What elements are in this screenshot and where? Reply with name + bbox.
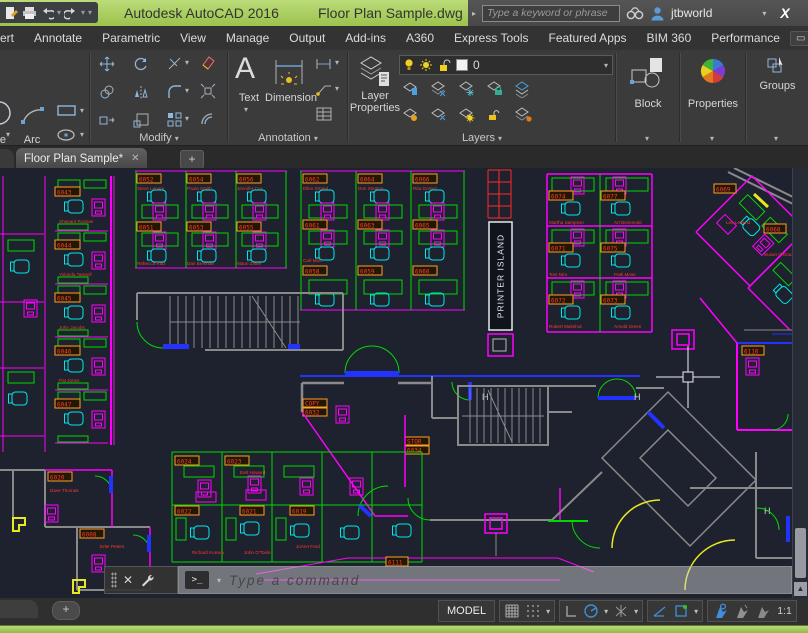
ribbon-tab-bar: Insert Annotate Parametric View Manage O… — [0, 26, 808, 50]
svg-text:Yolanda Tartanif: Yolanda Tartanif — [59, 272, 92, 277]
svg-text:6032: 6032 — [305, 410, 320, 417]
array-tool-icon[interactable] — [167, 112, 183, 128]
drag-grip-icon[interactable] — [111, 572, 117, 588]
document-title: Floor Plan Sample.dwg — [318, 5, 463, 21]
array-dropdown-icon[interactable]: ▾ — [185, 114, 189, 123]
annotation-autoscale-icon[interactable] — [733, 603, 749, 620]
app-title: Autodesk AutoCAD 2016 — [124, 5, 279, 21]
panel-block: Block ▾ — [617, 50, 679, 145]
svg-text:6063: 6063 — [360, 223, 375, 230]
search-input[interactable] — [482, 5, 620, 22]
exchange-apps-icon[interactable]: X — [780, 5, 789, 21]
crosshair-cursor — [656, 346, 720, 408]
svg-text:Pat Jones: Pat Jones — [59, 378, 80, 383]
file-tab-title: Floor Plan Sample* — [24, 153, 123, 165]
tab-add-ins[interactable]: Add-ins — [335, 26, 396, 50]
svg-text:6058: 6058 — [305, 269, 320, 276]
svg-text:6056: 6056 — [239, 177, 254, 184]
new-sheet-icon[interactable] — [4, 5, 19, 21]
tab-view[interactable]: View — [170, 26, 216, 50]
tab-performance[interactable]: Performance — [701, 26, 790, 50]
modify-panel-label[interactable]: Modify ▾ — [91, 132, 227, 144]
svg-text:6046: 6046 — [57, 349, 72, 356]
layer-properties-label-line2[interactable]: Properties — [349, 102, 401, 114]
fillet-tool-icon[interactable] — [167, 84, 183, 100]
annotation-panel-label[interactable]: Annotation ▾ — [229, 132, 347, 144]
user-icon[interactable] — [650, 6, 665, 21]
layers-panel-label[interactable]: Layers ▾ — [349, 132, 615, 144]
svg-text:6072: 6072 — [551, 298, 566, 305]
search-binoculars-icon[interactable] — [626, 6, 644, 20]
svg-text:Robert Malmhot: Robert Malmhot — [549, 324, 582, 329]
stretch-tool-icon[interactable] — [99, 112, 115, 128]
svg-text:Shepard Romias: Shepard Romias — [59, 219, 94, 224]
svg-text:H: H — [482, 392, 489, 402]
svg-text:Carl Mott: Carl Mott — [303, 258, 322, 263]
svg-text:John O'Toole: John O'Toole — [244, 550, 271, 555]
layer-properties-icon[interactable] — [357, 54, 391, 88]
layer-on-bulb-icon — [404, 58, 414, 72]
printer-island[interactable]: PRINTER ISLAND — [488, 170, 513, 356]
column-symbols[interactable] — [485, 330, 694, 556]
rectangle-dropdown-icon[interactable]: ▾ — [80, 106, 84, 115]
svg-text:6052: 6052 — [139, 177, 154, 184]
ribbon-minimize-icon[interactable]: ▭ ▾ — [790, 31, 808, 46]
dimension-tool-icon[interactable] — [271, 56, 307, 88]
fillet-dropdown-icon[interactable]: ▾ — [185, 86, 189, 95]
new-layout-button[interactable]: + — [52, 601, 80, 620]
qat-customize-icon[interactable]: ▾ — [88, 8, 92, 17]
isometric-drafting-icon[interactable] — [613, 603, 629, 619]
command-close-icon[interactable]: ✕ — [123, 573, 133, 587]
tab-bim-360[interactable]: BIM 360 — [637, 26, 702, 50]
user-dropdown-icon[interactable]: ▾ — [762, 9, 766, 18]
svg-text:Susan O'Grady: Susan O'Grady — [764, 252, 793, 257]
customize-wrench-icon[interactable] — [139, 572, 155, 588]
linear-dimension-dropdown-icon[interactable]: ▾ — [335, 58, 339, 67]
svg-text:Rebecca Ruiz: Rebecca Ruiz — [137, 261, 166, 266]
panel-properties: Properties ▾ — [681, 50, 745, 145]
circle-tool-icon[interactable] — [0, 98, 14, 128]
arc-tool-label[interactable]: Arc — [14, 134, 50, 145]
left-cubicle-strip[interactable]: 6043 Shepard Romias 6044 Yolanda Tartani… — [55, 176, 114, 445]
explode-tool-icon[interactable] — [199, 82, 217, 100]
tab-featured-apps[interactable]: Featured Apps — [538, 26, 636, 50]
layer-match-icon[interactable] — [513, 80, 535, 98]
svg-text:6024: 6024 — [177, 459, 192, 466]
new-drawing-tab-button[interactable]: + — [180, 150, 204, 169]
svg-text:Lee Ledend: Lee Ledend — [726, 220, 751, 225]
annotation-scale-value[interactable]: 1:1 — [775, 605, 792, 617]
object-snap-icon[interactable] — [673, 603, 689, 619]
svg-text:PRINTER ISLAND: PRINTER ISLAND — [496, 234, 506, 318]
copy-tool-icon[interactable] — [99, 84, 115, 100]
undo-dropdown-icon[interactable]: ▾ — [57, 8, 61, 17]
status-bar: + MODEL ▾ ▾ ▾ ▾ 1:1 — [0, 598, 808, 625]
svg-text:STOR: STOR — [407, 439, 422, 446]
layer-lock-icon[interactable] — [485, 80, 505, 98]
plot-icon[interactable] — [22, 5, 37, 20]
properties-label[interactable]: Properties — [681, 98, 745, 110]
tab-a360[interactable]: A360 — [396, 26, 444, 50]
snap-mode-icon[interactable] — [525, 603, 541, 619]
svg-text:6074: 6074 — [551, 194, 566, 201]
properties-color-wheel-icon[interactable] — [698, 56, 728, 86]
svg-text:Art Bezemold: Art Bezemold — [614, 220, 642, 225]
svg-text:6020: 6020 — [50, 475, 65, 482]
svg-text:6051: 6051 — [139, 225, 154, 232]
layer-off-icon[interactable] — [401, 106, 421, 124]
layer-unisolate-icon[interactable] — [429, 80, 449, 98]
svg-text:6062: 6062 — [305, 177, 320, 184]
layer-select-dropdown-icon[interactable]: ▾ — [604, 61, 608, 70]
svg-text:6045: 6045 — [57, 296, 72, 303]
floor-plan-drawing: 6043 Shepard Romias 6044 Yolanda Tartani… — [0, 168, 793, 598]
svg-text:6055: 6055 — [239, 225, 254, 232]
svg-text:6071: 6071 — [551, 246, 566, 253]
snap-dropdown-icon[interactable]: ▾ — [546, 607, 550, 616]
erase-tool-icon[interactable] — [199, 54, 217, 72]
svg-text:6021: 6021 — [242, 509, 257, 516]
command-input-area[interactable]: >_ ▾ Type a command — [178, 566, 792, 594]
svg-text:6066: 6066 — [415, 177, 430, 184]
isometric-dropdown-icon[interactable]: ▾ — [634, 607, 638, 616]
svg-text:6060: 6060 — [415, 269, 430, 276]
redo-dropdown-icon[interactable]: ▾ — [81, 8, 85, 17]
file-tab-bar: Floor Plan Sample* ✕ + — [0, 145, 808, 169]
svg-text:6023: 6023 — [227, 459, 242, 466]
svg-text:Dan Brennan: Dan Brennan — [187, 261, 215, 266]
undo-icon[interactable] — [40, 6, 54, 20]
layer-isolate-icon[interactable] — [401, 80, 421, 98]
room-6110[interactable]: 6110 — [737, 330, 793, 430]
svg-text:Richard Kumea: Richard Kumea — [192, 550, 224, 555]
command-line[interactable]: ✕ >_ ▾ Type a command — [104, 566, 792, 594]
ellipse-dropdown-icon[interactable]: ▾ — [80, 130, 84, 139]
text-tool-label[interactable]: Text — [231, 92, 267, 104]
infocenter-collapse-icon[interactable]: ▸ — [472, 9, 476, 18]
svg-text:6008: 6008 — [82, 532, 97, 539]
recent-commands-icon[interactable]: ▾ — [217, 576, 221, 585]
trim-dropdown-icon[interactable]: ▾ — [185, 58, 189, 67]
svg-text:6110: 6110 — [744, 349, 759, 356]
tab-annotate[interactable]: Annotate — [24, 26, 92, 50]
svg-text:6059: 6059 — [360, 269, 375, 276]
layer-color-swatch — [456, 59, 468, 71]
move-tool-icon[interactable] — [99, 56, 115, 72]
layer-walk-icon[interactable] — [513, 106, 535, 124]
layout-tab-stub[interactable] — [0, 600, 38, 618]
svg-text:Toni Niro: Toni Niro — [549, 272, 568, 277]
cubicle-cluster-c[interactable]: 6074 Martha Sampson 6077 Art Bezemold 60… — [547, 174, 652, 332]
svg-text:6047: 6047 — [57, 402, 72, 409]
svg-text:Arnold Green: Arnold Green — [614, 324, 642, 329]
model-space-button[interactable]: MODEL — [438, 600, 495, 622]
command-input-placeholder[interactable]: Type a command — [229, 573, 360, 588]
cubicle-cluster-a[interactable]: 6052 Steve Lenare 6054 Paula Smith 6056 … — [135, 171, 287, 268]
svg-text:6034: 6034 — [407, 448, 422, 455]
groups-icon[interactable] — [767, 56, 787, 76]
ortho-mode-icon[interactable] — [564, 604, 578, 618]
svg-text:6064: 6064 — [360, 177, 375, 184]
rotate-tool-icon[interactable] — [133, 56, 149, 72]
tab-express-tools[interactable]: Express Tools — [444, 26, 538, 50]
left-edge-cubicles[interactable] — [0, 176, 45, 452]
block-icon[interactable] — [630, 56, 666, 92]
layer-unlock-icon — [438, 59, 451, 72]
svg-text:6044: 6044 — [57, 243, 72, 250]
command-prompt-icon[interactable]: >_ — [185, 571, 209, 589]
offset-tool-icon[interactable] — [199, 110, 217, 128]
mirror-tool-icon[interactable] — [133, 84, 149, 100]
stairwell-top-left[interactable] — [137, 293, 343, 350]
vertical-scrollbar[interactable]: ▲ — [792, 168, 808, 598]
leader-dropdown-icon[interactable]: ▾ — [335, 84, 339, 93]
svg-text:6075: 6075 — [603, 246, 618, 253]
svg-text:Earl Howard: Earl Howard — [240, 470, 266, 475]
properties-panel-expander-icon[interactable]: ▾ — [710, 134, 714, 143]
layer-thaw-sun-icon — [419, 58, 433, 72]
tab-manage[interactable]: Manage — [216, 26, 279, 50]
svg-text:H: H — [634, 392, 641, 402]
svg-text:6054: 6054 — [189, 177, 204, 184]
svg-text:6065: 6065 — [415, 223, 430, 230]
object-snap-dropdown-icon[interactable]: ▾ — [694, 607, 698, 616]
panel-groups: Groups ▾ — [747, 50, 808, 145]
layer-on-all-icon[interactable] — [429, 106, 449, 124]
ribbon: Circle Arc ▾ ▾ ▾ ▾ ▾ ▾ ▾ ▾ Modify ▾ A Te… — [0, 50, 808, 145]
annotation-scale-icon[interactable] — [754, 603, 770, 620]
stairwell-central[interactable] — [432, 376, 664, 445]
polar-tracking-icon[interactable] — [583, 603, 599, 619]
tab-output[interactable]: Output — [279, 26, 335, 50]
layer-properties-label-line1[interactable]: Layer — [349, 90, 401, 102]
svg-text:6073: 6073 — [603, 298, 618, 305]
rotated-rooms-bottom-right[interactable]: H — [548, 392, 793, 590]
arc-tool-icon[interactable] — [20, 104, 46, 126]
svg-text:COPY: COPY — [305, 401, 320, 408]
scale-tool-icon[interactable] — [133, 112, 149, 128]
layer-thaw-all-icon[interactable] — [457, 106, 477, 124]
title-bar: ▾ ▾ ▾ Autodesk AutoCAD 2016 Floor Plan S… — [0, 0, 808, 26]
table-tool-icon[interactable] — [315, 106, 333, 122]
panel-layers: Layer Properties 0 ▾ Layers ▾ — [349, 50, 615, 145]
linear-dimension-icon[interactable] — [315, 58, 333, 70]
rectangle-tool-icon[interactable] — [56, 104, 78, 118]
file-tab-stub — [0, 149, 14, 169]
ellipse-tool-icon[interactable] — [56, 128, 78, 142]
trim-tool-icon[interactable] — [167, 56, 183, 72]
tab-parametric[interactable]: Parametric — [92, 26, 170, 50]
scrollbar-thumb[interactable] — [795, 528, 806, 578]
infocenter: ▸ jtbworld ▾ X — [468, 0, 808, 26]
file-tab-close-icon[interactable]: ✕ — [131, 153, 139, 164]
signed-in-user[interactable]: jtbworld — [671, 6, 712, 20]
tab-insert[interactable]: Insert — [0, 26, 24, 50]
svg-text:JoAnn Ford: JoAnn Ford — [296, 544, 320, 549]
svg-text:6068: 6068 — [766, 227, 781, 234]
polar-dropdown-icon[interactable]: ▾ — [604, 607, 608, 616]
groups-label[interactable]: Groups — [747, 80, 808, 92]
text-dropdown-icon[interactable]: ▾ — [244, 105, 248, 114]
draw-panel-expander-icon[interactable]: ▾ — [6, 130, 10, 144]
panel-draw: Circle Arc ▾ ▾ ▾ ▾ ▾ — [0, 50, 89, 145]
layer-unlock-all-icon[interactable] — [485, 106, 505, 124]
drawing-canvas[interactable]: 6043 Shepard Romias 6044 Yolanda Tartani… — [0, 168, 808, 598]
annotation-visibility-icon[interactable] — [712, 603, 728, 620]
svg-text:Martha Sampson: Martha Sampson — [549, 220, 584, 225]
block-panel-expander-icon[interactable]: ▾ — [645, 134, 649, 143]
scrollbar-up-icon[interactable]: ▲ — [794, 582, 807, 596]
cubicle-cluster-b[interactable]: 6062 Ellen Strand 6064 Don Stanton 6066 … — [300, 171, 465, 310]
text-tool-icon[interactable]: A — [235, 52, 255, 86]
redo-icon[interactable] — [64, 6, 78, 20]
svg-text:6061: 6061 — [305, 223, 320, 230]
file-tab-active[interactable]: Floor Plan Sample* ✕ — [16, 148, 147, 169]
leader-tool-icon[interactable] — [315, 82, 333, 96]
svg-text:6069: 6069 — [716, 187, 731, 194]
svg-text:6053: 6053 — [189, 225, 204, 232]
dimension-tool-label[interactable]: Dimension — [263, 92, 319, 104]
panel-modify: ▾ ▾ ▾ Modify ▾ — [91, 50, 227, 145]
object-snap-tracking-icon[interactable] — [652, 604, 668, 618]
command-line-grip[interactable]: ✕ — [104, 566, 178, 594]
svg-text:6077: 6077 — [603, 194, 618, 201]
svg-text:Dave Thomas: Dave Thomas — [50, 488, 79, 493]
layer-freeze-icon[interactable] — [457, 80, 477, 98]
svg-text:6019: 6019 — [292, 509, 307, 516]
svg-text:Erler Peters: Erler Peters — [100, 544, 125, 549]
groups-panel-expander-icon[interactable]: ▾ — [774, 134, 778, 143]
layer-select[interactable]: 0 ▾ — [399, 55, 613, 75]
grid-display-icon[interactable] — [504, 603, 520, 619]
block-label[interactable]: Block — [617, 98, 679, 110]
svg-text:Mauri Zinke: Mauri Zinke — [237, 261, 261, 266]
svg-text:6043: 6043 — [57, 190, 72, 197]
quick-access-toolbar[interactable]: ▾ ▾ ▾ — [0, 2, 98, 23]
svg-text:6022: 6022 — [177, 509, 192, 516]
current-layer-name: 0 — [473, 58, 480, 72]
svg-text:John Jacobs: John Jacobs — [59, 325, 85, 330]
cubicle-cluster-bottom[interactable]: 6024 6023 Earl Howard 6022 6021 6019 Ric… — [172, 452, 422, 562]
panel-annotation: A Text ▾ Dimension ▾ ▾ Annotation ▾ — [229, 50, 347, 145]
diagonal-offices[interactable]: 6069 Lee Ledend 6068 Susan O'Grady — [696, 168, 793, 343]
svg-text:Patti Mose: Patti Mose — [614, 272, 636, 277]
